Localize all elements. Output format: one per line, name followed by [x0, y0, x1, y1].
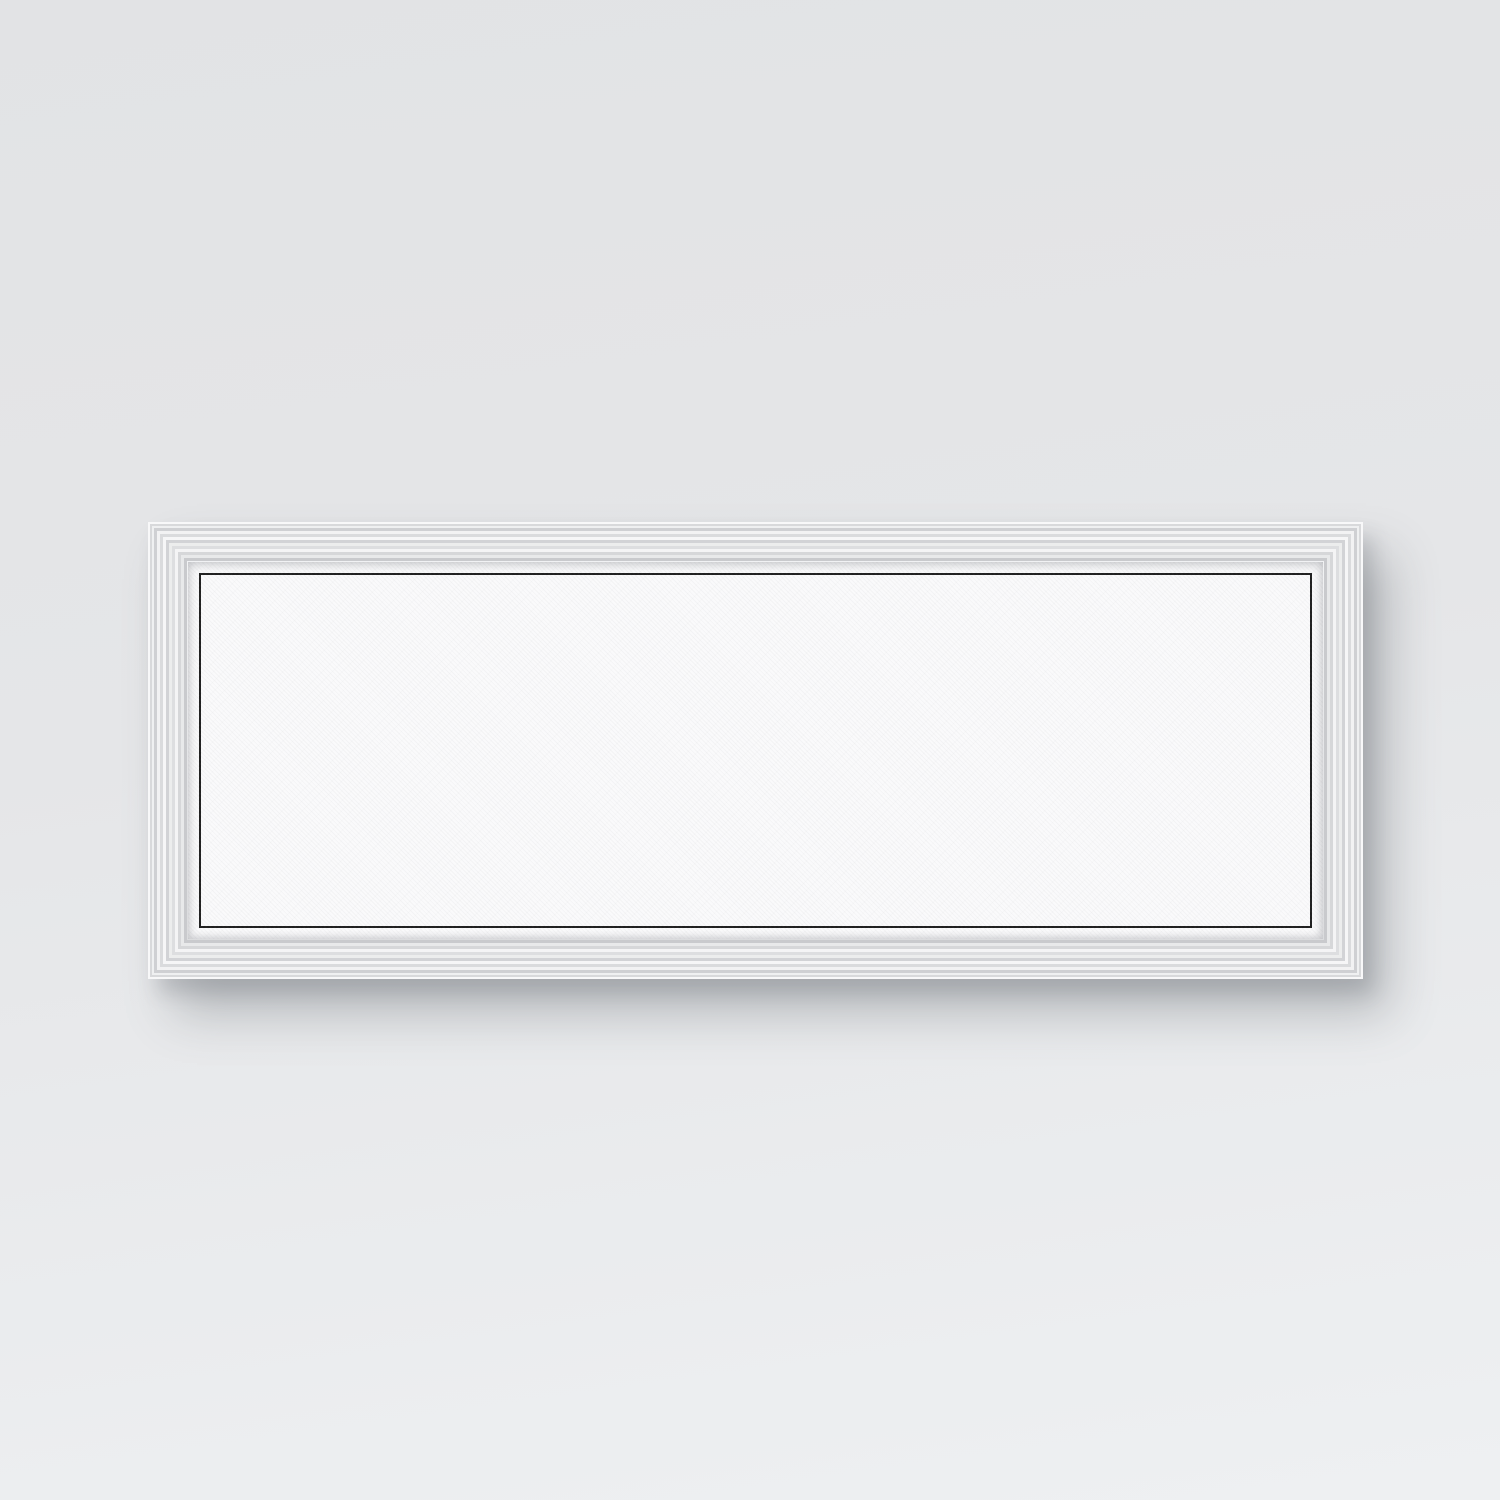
picture-frame [148, 522, 1363, 979]
canvas-print [188, 562, 1323, 939]
product-photo [0, 0, 1500, 1500]
map-border [199, 573, 1312, 928]
city-map-graphic [201, 575, 1310, 926]
